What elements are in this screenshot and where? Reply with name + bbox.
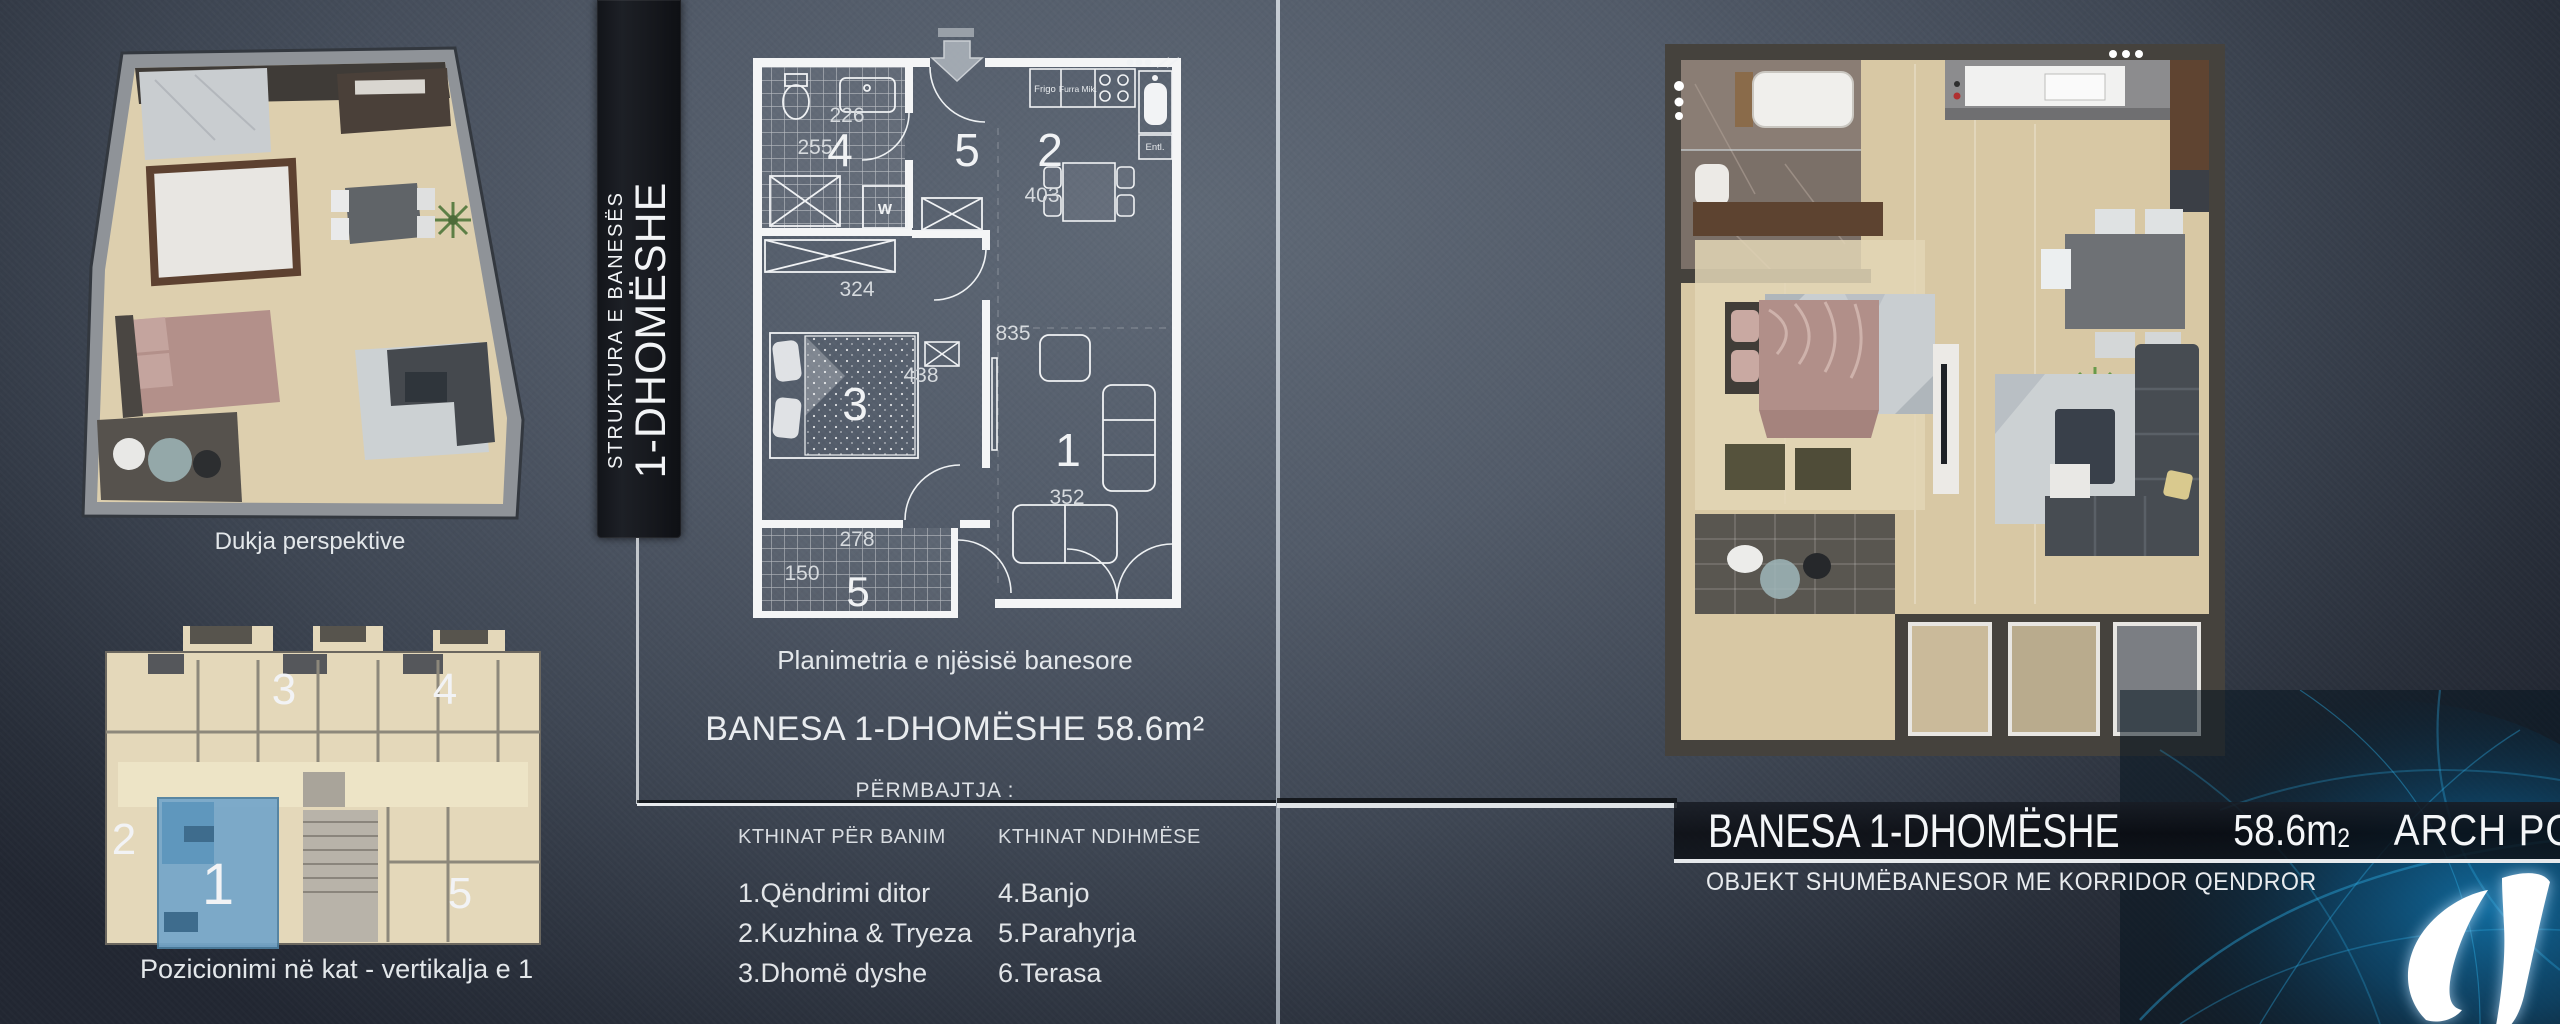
column-header: KTHINAT NDIHMËSE <box>998 826 1248 849</box>
band-area-exponent: 2 <box>2337 823 2350 853</box>
plant <box>435 202 471 238</box>
band-subtitle: OBJEKT SHUMËBANESOR ME KORRIDOR QENDROR <box>1706 868 2317 897</box>
band-step-line <box>1277 803 1677 808</box>
perspective-caption: Dukja perspektive <box>140 528 480 556</box>
toilet <box>1695 164 1729 206</box>
wall-dots <box>1127 59 1152 66</box>
svg-text:W: W <box>878 201 893 218</box>
separator-line <box>637 803 1277 806</box>
band-title: BANESA 1-DHOMËSHE <box>1708 803 2120 858</box>
topdown-render <box>1665 44 2225 756</box>
terrace-white-chair <box>1727 545 1763 573</box>
stair-core <box>303 810 378 942</box>
entry-closet-label: Entl. <box>1145 142 1164 153</box>
list-item: 5.Parahyrja <box>998 913 1248 953</box>
svg-text:352: 352 <box>1049 486 1084 509</box>
svg-text:2: 2 <box>112 815 136 864</box>
arch-point-logo-icon <box>2366 872 2550 1024</box>
band-area: 58.6m2 <box>2233 806 2350 856</box>
dining-table <box>345 183 422 244</box>
contents-column-auxiliary: KTHINAT NDIHMËSE 4.Banjo 5.Parahyrja 6.T… <box>998 826 1248 993</box>
unit-title: BANESA 1-DHOMËSHE 58.6m² <box>705 710 1205 749</box>
svg-text:1: 1 <box>202 852 234 917</box>
brand-name: ARCH POINT <box>2394 806 2560 856</box>
contents-heading: PËRMBAJTJA : <box>705 779 1165 803</box>
living-furniture <box>1013 335 1155 563</box>
fridge-label: Frigo <box>1034 84 1056 95</box>
entrance-arrow-icon <box>932 28 982 81</box>
list-item: 3.Dhomë dyshe <box>738 953 993 993</box>
list-item: 1.Qëndrimi ditor <box>738 873 993 913</box>
svg-text:226: 226 <box>829 104 864 127</box>
list-item: 2.Kuzhina & Tryeza <box>738 913 993 953</box>
kitchen-counter <box>337 68 451 134</box>
column-header: KTHINAT PËR BANIM <box>738 826 993 849</box>
svg-text:835: 835 <box>995 322 1030 345</box>
render-wardrobe <box>1693 202 1883 236</box>
white-chair <box>113 438 145 470</box>
bathroom-marble <box>139 68 271 160</box>
svg-text:5: 5 <box>448 869 472 918</box>
svg-text:438: 438 <box>903 364 938 387</box>
glass-table <box>148 438 192 482</box>
svg-text:2: 2 <box>1037 124 1063 176</box>
position-caption: Pozicionimi në kat - vertikalja e 1 <box>118 954 590 985</box>
banner-line2: 1-DHOMËSHE <box>628 182 674 479</box>
svg-text:3: 3 <box>272 665 296 714</box>
svg-text:150: 150 <box>784 562 819 585</box>
list-item: 4.Banjo <box>998 873 1248 913</box>
terrace-black-chair <box>1803 553 1831 579</box>
kitchen-sink <box>1144 83 1167 125</box>
title-band: BANESA 1-DHOMËSHE 58.6m2 ARCH POINT <box>1674 802 2560 863</box>
svg-text:278: 278 <box>839 528 874 551</box>
oven-label: Furra Mik. <box>1059 84 1097 94</box>
tall-cabinet <box>2170 60 2210 170</box>
banner-tail-line <box>636 538 639 804</box>
center-divider <box>1276 0 1280 1024</box>
floor-position-plan: 3 4 2 1 5 <box>88 612 558 952</box>
yellow-pillow <box>2163 470 2194 501</box>
svg-text:255: 255 <box>797 136 832 159</box>
black-chair <box>193 450 221 478</box>
floorplan-caption: Planimetria e njësisë banesore <box>720 645 1190 676</box>
perspective-render <box>55 20 555 520</box>
band-area-value: 58.6m <box>2233 806 2337 855</box>
banner-line1: STRUKTURA E BANESËS <box>604 182 628 479</box>
svg-text:4: 4 <box>433 665 457 714</box>
bedroom-chair <box>1725 444 1785 490</box>
unit-floorplan: W Frigo Furra Mik. Entl. <box>745 28 1215 628</box>
svg-text:324: 324 <box>839 278 874 301</box>
coffee-table <box>405 372 447 402</box>
presentation-board: Dukja perspektive 3 4 <box>0 0 2560 1024</box>
svg-text:5: 5 <box>954 124 980 176</box>
structure-banner-text: STRUKTURA E BANESËS 1-DHOMËSHE <box>604 182 674 479</box>
list-item: 6.Terasa <box>998 953 1248 993</box>
contents-column-living: KTHINAT PËR BANIM 1.Qëndrimi ditor 2.Kuz… <box>738 826 993 993</box>
terrace-glass-table <box>1760 559 1800 599</box>
structure-banner: STRUKTURA E BANESËS 1-DHOMËSHE <box>597 0 681 538</box>
svg-text:403: 403 <box>1024 184 1059 207</box>
svg-text:3: 3 <box>842 378 868 430</box>
wardrobe <box>150 162 297 282</box>
svg-text:1: 1 <box>1055 424 1081 476</box>
bathtub <box>1753 72 1853 127</box>
svg-text:5: 5 <box>846 568 869 615</box>
